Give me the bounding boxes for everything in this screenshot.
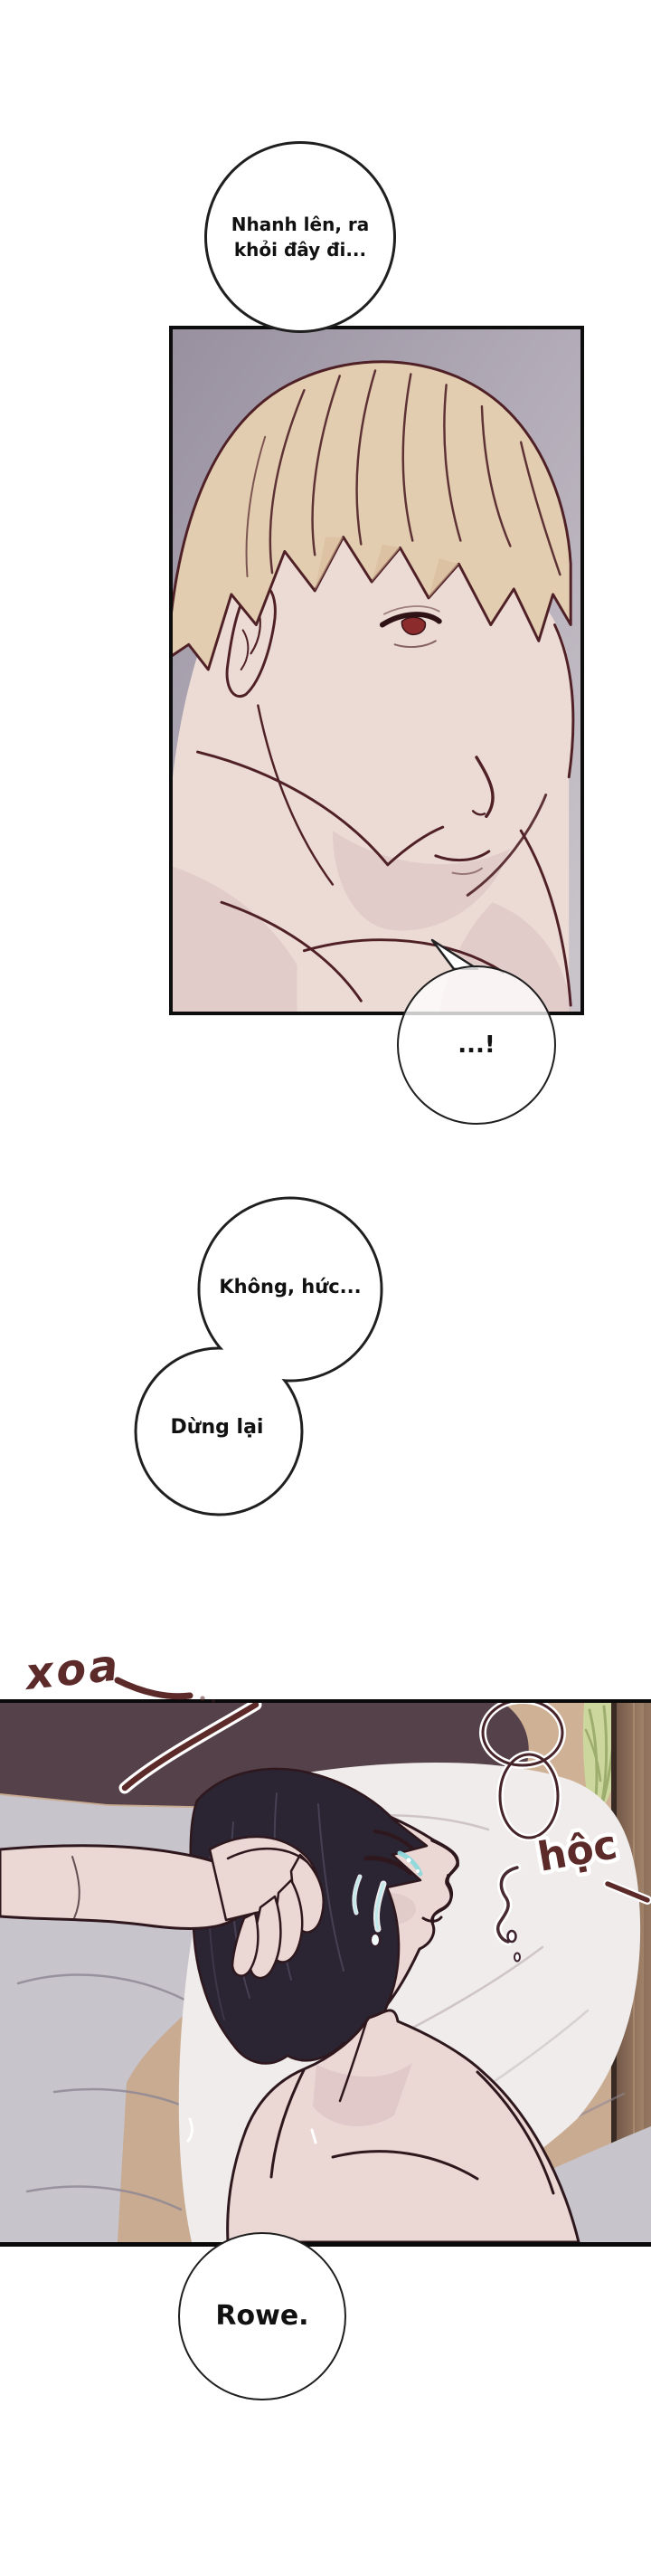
panel-1 [169,326,584,1015]
arm [0,1846,242,1929]
panel-2-illustration: hộc [0,1703,651,2242]
speech-bubble-top: Nhanh lên, ra khỏi đây đi... [204,141,396,333]
speech-bubble-rowe-text: Rowe. [215,2297,308,2336]
speech-bubble-stop-text: Dừng lại [171,1413,264,1441]
sfx-xoa-dash [118,1680,190,1697]
tear-drop [371,1934,380,1946]
speech-bubble-no: Không, hức... [200,1265,381,1310]
iris [401,617,425,634]
panel-2: hộc [0,1699,651,2247]
speech-bubble-exclaim: ...! [397,965,556,1125]
sfx-xoa-text: xoa [21,1640,123,1700]
speech-bubble-stop: Dừng lại [136,1405,298,1450]
blonde-character [173,362,573,1012]
sfx-xoa: xoa [7,1624,224,1724]
speech-bubble-exclaim-text: ...! [458,1029,495,1062]
speech-bubble-top-text: Nhanh lên, ra khỏi đây đi... [231,212,370,263]
speech-bubble-rowe: Rowe. [178,2232,346,2400]
panel-1-illustration [173,329,580,1012]
speech-bubble-no-text: Không, hức... [219,1274,361,1301]
comic-page: Nhanh lên, ra khỏi đây đi... [0,0,651,2576]
joined-speech-bubbles [125,1193,389,1520]
